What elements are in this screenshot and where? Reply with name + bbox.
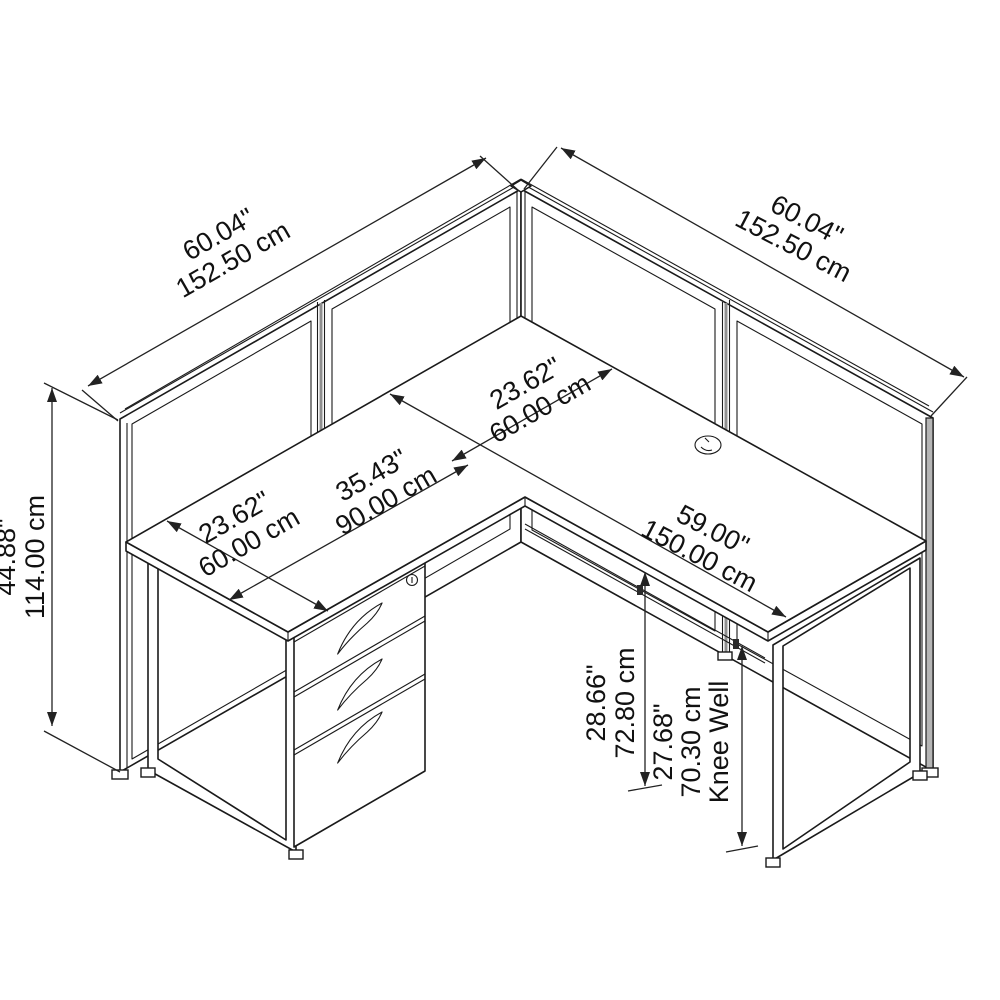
left-o-leg-foot-front [289, 850, 303, 859]
dim-desk-height-inches: 28.66" [581, 664, 611, 741]
dim-knee-well-cm: 70.30 cm [676, 686, 706, 797]
right-mullion-foot [718, 652, 732, 660]
dim-knee-well-label: Knee Well [704, 681, 734, 804]
right-o-leg-foot-front [766, 858, 780, 867]
left-o-leg-foot-back [141, 768, 155, 777]
dim-desk-height-cm: 72.80 cm [610, 647, 640, 758]
right-wall-end-post [926, 418, 933, 771]
dim-panel-height-cm: 114.00 cm [20, 495, 50, 619]
technical-drawing: 60.04" 152.50 cm 60.04" 152.50 cm 23.62"… [0, 0, 1000, 1000]
dim-knee-well-inches: 27.68" [648, 703, 678, 780]
dim-knee-well: 27.68" 70.30 cm Knee Well [648, 646, 758, 852]
dim-panel-height-inches: 44.88" [0, 518, 21, 595]
rail-clip [637, 585, 643, 595]
technical-drawing-page: 60.04" 152.50 cm 60.04" 152.50 cm 23.62"… [0, 0, 1000, 1000]
rail-clip [733, 639, 739, 649]
dim-panel-height: 44.88" 114.00 cm [0, 383, 120, 772]
right-o-leg-foot-back [913, 771, 927, 780]
